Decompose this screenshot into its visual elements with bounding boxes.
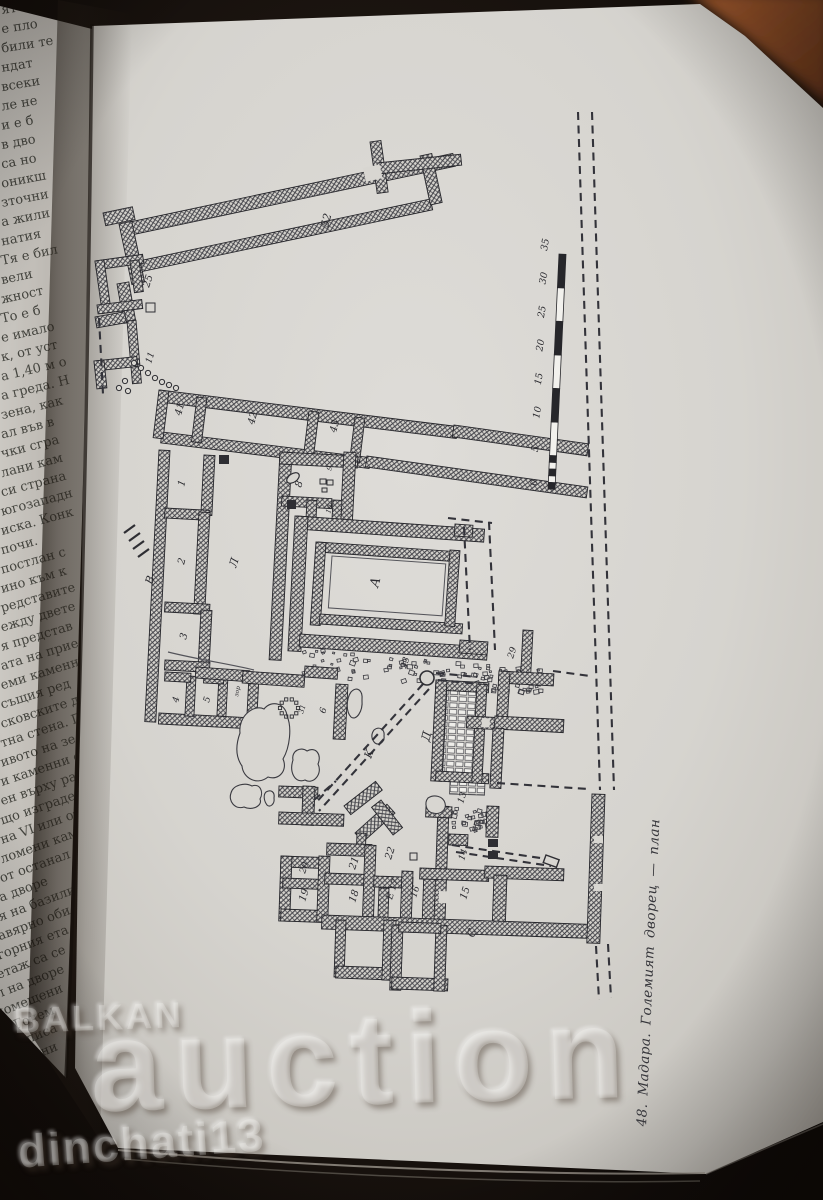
book-photo: яте плобили тендатвсекиле неи е бв двоса… [0,0,823,1200]
